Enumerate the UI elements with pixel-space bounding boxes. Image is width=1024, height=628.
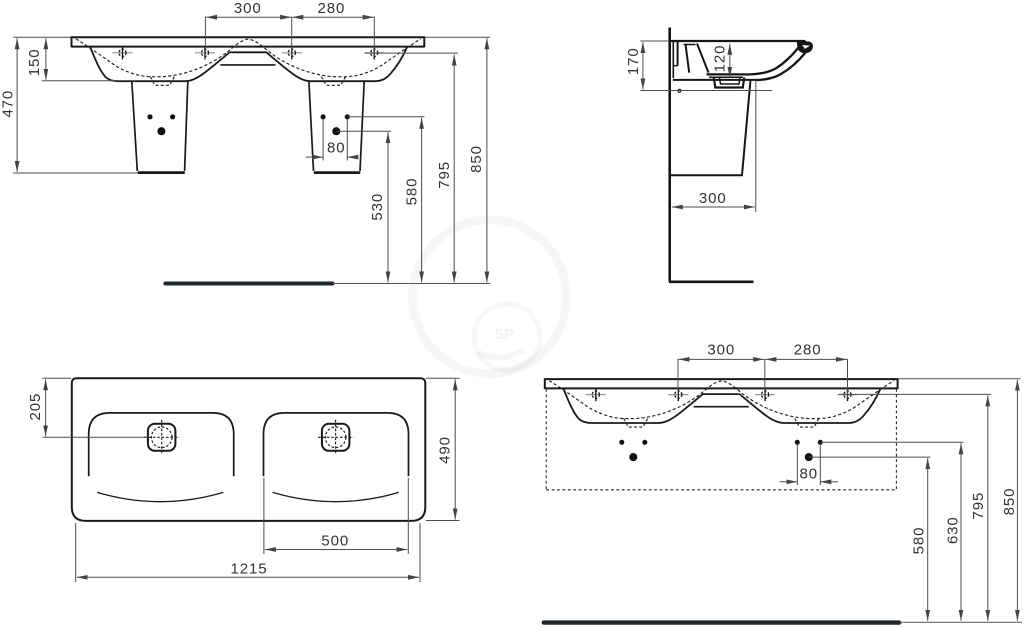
svg-text:1215: 1215 bbox=[231, 560, 268, 577]
svg-text:170: 170 bbox=[625, 47, 642, 75]
svg-text:300: 300 bbox=[699, 190, 727, 207]
svg-text:795: 795 bbox=[970, 492, 987, 520]
svg-text:850: 850 bbox=[468, 145, 485, 173]
svg-text:280: 280 bbox=[318, 0, 346, 17]
svg-text:530: 530 bbox=[369, 193, 386, 221]
svg-text:580: 580 bbox=[910, 527, 927, 555]
svg-text:205: 205 bbox=[27, 393, 44, 421]
svg-text:470: 470 bbox=[0, 90, 16, 118]
svg-text:120: 120 bbox=[712, 45, 729, 73]
svg-text:500: 500 bbox=[321, 533, 349, 550]
svg-text:630: 630 bbox=[945, 516, 962, 544]
svg-text:80: 80 bbox=[800, 466, 819, 483]
svg-text:490: 490 bbox=[437, 436, 454, 464]
svg-text:850: 850 bbox=[1001, 488, 1018, 516]
svg-text:580: 580 bbox=[403, 178, 420, 206]
svg-text:300: 300 bbox=[234, 0, 262, 17]
svg-text:150: 150 bbox=[26, 49, 43, 77]
svg-text:280: 280 bbox=[794, 341, 822, 358]
svg-text:795: 795 bbox=[436, 161, 453, 189]
svg-text:SP: SP bbox=[494, 326, 514, 343]
svg-text:300: 300 bbox=[707, 341, 735, 358]
svg-text:80: 80 bbox=[327, 140, 346, 157]
